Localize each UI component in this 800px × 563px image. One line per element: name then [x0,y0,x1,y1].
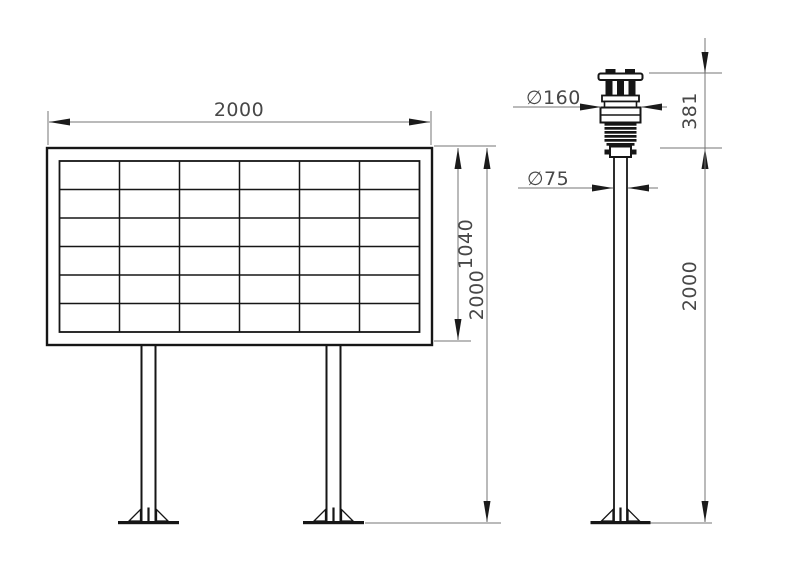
sensor-post [606,80,613,96]
dim-sensor-diameter: ∅160 [513,87,667,111]
dim-label-panel-height: 1040 [455,219,477,269]
base-gusset [602,510,614,522]
dim-label-board-width: 2000 [214,99,264,121]
sensor-post [629,80,636,96]
dim-label-pole-diameter: ∅75 [527,168,569,190]
arrow-left [641,104,662,111]
neck-tab [631,150,637,155]
shield-rib [605,131,637,134]
sensor-radiation-shield [605,123,637,146]
arrow-right [409,119,430,126]
dim-pole-diameter: ∅75 [518,168,658,192]
sensor-cap [599,74,643,81]
base-gusset [628,510,640,522]
dim-board-width: 2000 [48,99,431,145]
display-board [47,148,432,524]
arrow-down [702,501,709,522]
base-gusset [157,510,169,522]
arrow-down [702,52,709,73]
arrow-right [592,185,613,192]
sensor-band [602,96,639,102]
arrow-left [49,119,70,126]
technical-drawing-canvas: 2000 1040 2000 ∅160 ∅75 381 [0,0,800,563]
base-gusset [314,510,326,522]
base-gusset [342,510,354,522]
dim-label-board-total-height: 2000 [466,270,488,320]
sensor-post [617,80,624,96]
dim-label-sensor-diameter: ∅160 [526,87,581,109]
arrow-up [455,148,462,169]
arrow-down [484,501,491,522]
drawing-svg: 2000 1040 2000 ∅160 ∅75 381 [0,0,800,563]
shield-rib [605,127,637,130]
shield-rib [605,123,637,126]
board-left-leg [118,345,179,524]
weather-sensor-pole [591,69,651,524]
dim-label-pole-height: 2000 [679,261,701,311]
dim-sensor-height: 381 [649,38,722,169]
arrow-left [628,185,649,192]
arrow-down [455,319,462,340]
board-right-leg [303,345,364,524]
shield-rib [605,135,637,138]
pole-base [591,508,651,525]
shield-rib [607,143,635,146]
dim-pole-height: 2000 [651,73,713,523]
base-plate [118,521,179,524]
sensor-neck [610,147,631,158]
base-plate [303,521,364,524]
dim-label-sensor-height: 381 [679,92,701,130]
arrow-up [484,148,491,169]
shield-rib [605,139,637,142]
base-plate [591,521,651,524]
base-gusset [129,510,141,522]
neck-tab [605,150,611,155]
arrow-right [580,104,601,111]
sensor-head [599,69,643,157]
